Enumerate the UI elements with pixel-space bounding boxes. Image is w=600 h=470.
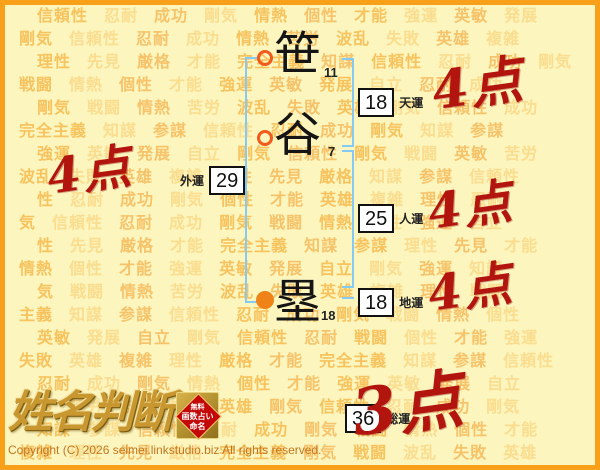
gaiun-fortune: 外運 29 <box>180 166 245 195</box>
stroke-count-3: 18 <box>321 308 335 323</box>
char-marker-circle <box>256 291 274 309</box>
free-naming-badge[interactable]: 無料 画数占い 命名 <box>176 392 219 439</box>
seimei-result-page: 信頼性忍耐成功剛気情熱個性才能強運英敏発展剛気信頼性忍耐成功情熱苦労波乱失敗英雄… <box>0 0 600 470</box>
jinun-label: 人運 <box>399 210 423 227</box>
jinun-score-stamp: 4点 <box>425 177 516 236</box>
jinun-value-box: 25 <box>358 204 394 233</box>
tenun-fortune: 18 天運 <box>358 88 423 117</box>
gaiun-label: 外運 <box>180 172 204 189</box>
char-marker-circle <box>257 130 273 146</box>
badge-line-meimei: 命名 <box>190 422 206 432</box>
tenun-label: 天運 <box>399 94 423 111</box>
seimei-handan-logo[interactable]: 姓名判断 <box>8 391 172 435</box>
badge-line-free: 無料 <box>191 404 205 412</box>
chiun-fortune: 18 地運 <box>358 288 423 317</box>
stroke-count-2: 7 <box>328 144 335 159</box>
tenun-value-box: 18 <box>358 88 394 117</box>
gaiun-value-box: 29 <box>209 166 245 195</box>
chiun-value-box: 18 <box>358 288 394 317</box>
gaiun-score-stamp: 4点 <box>44 142 135 201</box>
name-character-2: 谷 <box>274 113 321 160</box>
tenun-score-stamp: 4点 <box>429 54 528 118</box>
name-character-3: 塁 <box>274 280 321 327</box>
chiun-label: 地運 <box>399 294 423 311</box>
tenun-group-bracket <box>342 58 354 147</box>
jinun-fortune: 25 人運 <box>358 204 423 233</box>
chiun-connector-line <box>342 297 354 299</box>
name-character-1: 笹 <box>274 32 321 79</box>
copyright-text: Copyright (C) 2026 seimei.linkstudio.biz… <box>8 443 321 457</box>
soun-score-stamp: 3点 <box>348 367 468 446</box>
badge-line-kakusu: 画数占い <box>182 412 214 422</box>
stroke-count-1: 11 <box>324 65 338 80</box>
chiun-score-stamp: 4点 <box>425 259 516 318</box>
badge-text: 無料 画数占い 命名 <box>177 393 218 438</box>
jinun-group-bracket <box>342 150 354 288</box>
name-group-bracket-left <box>245 57 257 303</box>
char-marker-circle <box>257 50 273 66</box>
